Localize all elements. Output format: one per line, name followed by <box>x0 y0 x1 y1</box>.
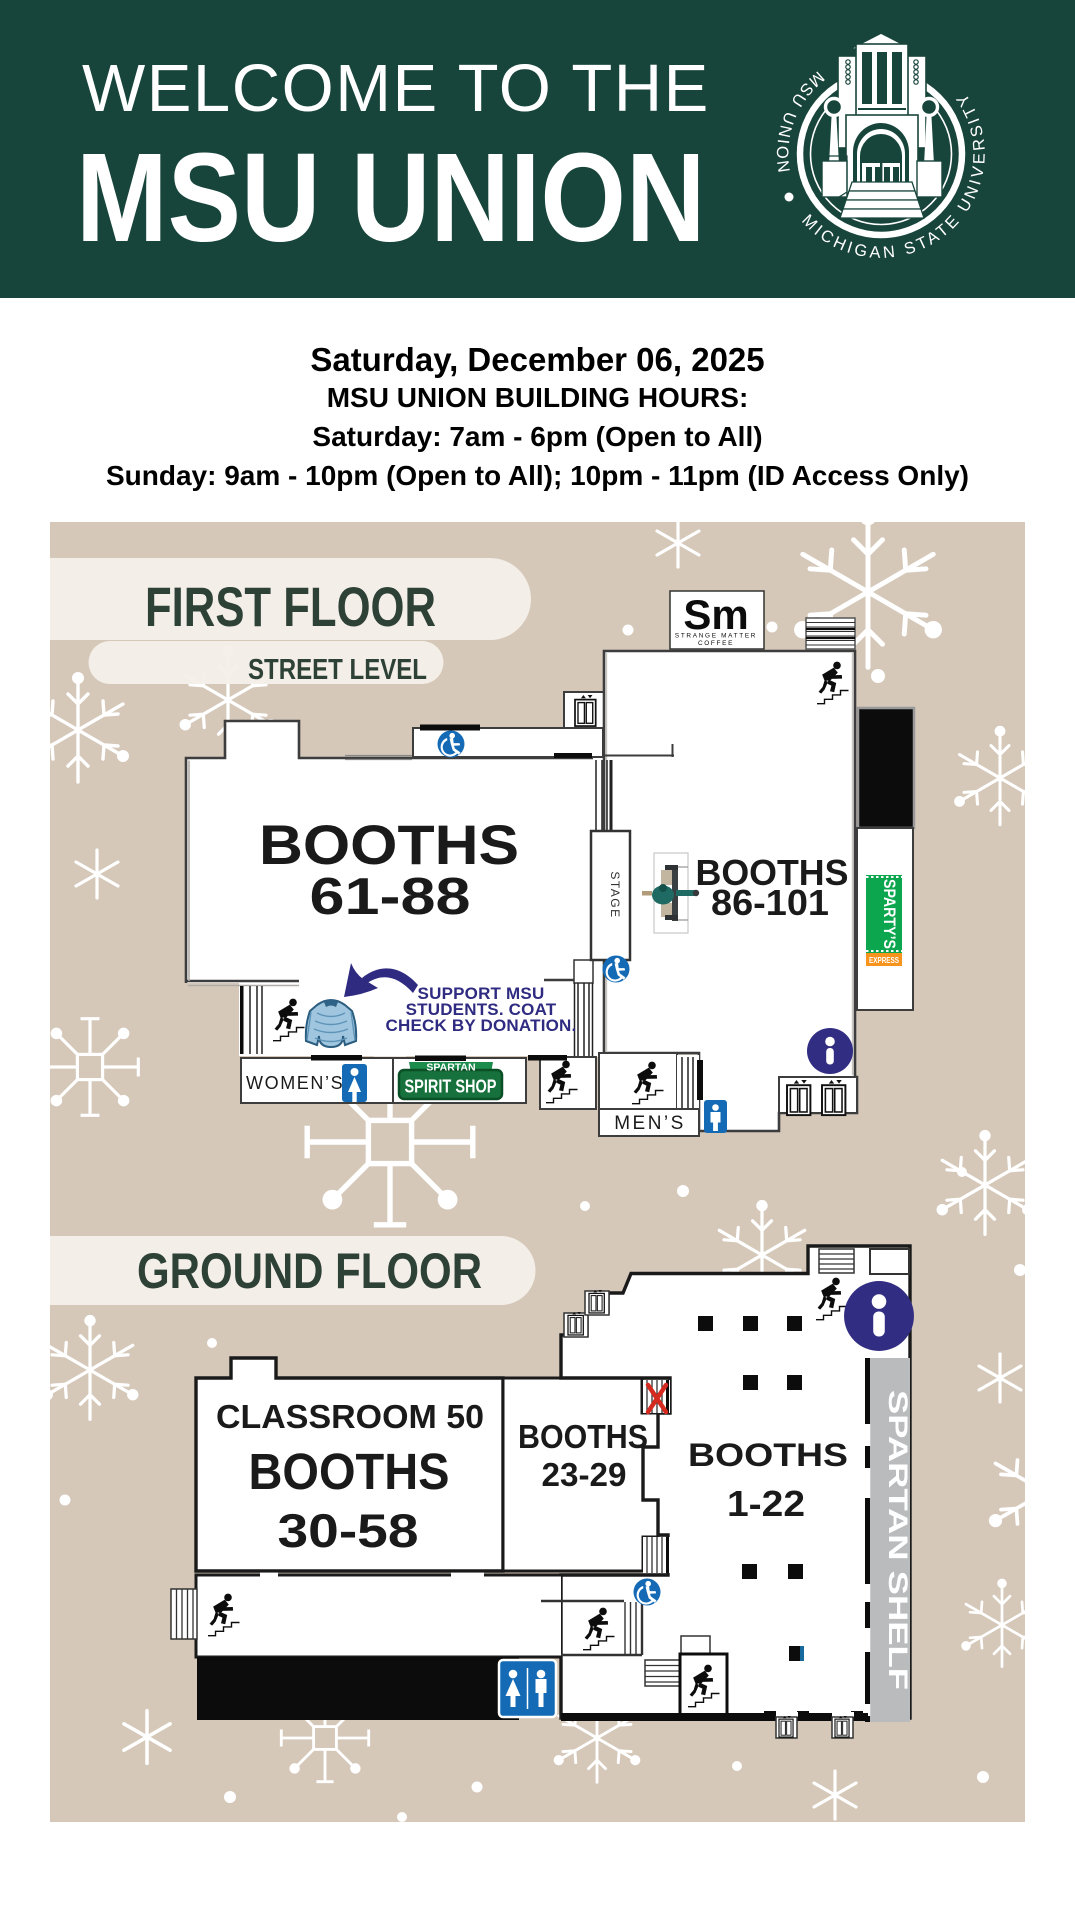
svg-text:BOOTHS: BOOTHS <box>259 813 519 876</box>
svg-text:1-22: 1-22 <box>727 1483 805 1524</box>
svg-text:23-29: 23-29 <box>542 1456 627 1493</box>
svg-text:Sm: Sm <box>683 591 748 638</box>
svg-text:SPARTAN: SPARTAN <box>426 1062 475 1074</box>
svg-text:STRANGE MATTER: STRANGE MATTER <box>675 633 757 640</box>
svg-text:CLASSROOM 50: CLASSROOM 50 <box>216 1398 484 1435</box>
svg-text:SPARTAN SHELF: SPARTAN SHELF <box>883 1390 913 1690</box>
svg-text:86-101: 86-101 <box>711 882 829 923</box>
svg-text:COFFEE: COFFEE <box>698 640 734 647</box>
svg-text:BOOTHS: BOOTHS <box>249 1443 450 1500</box>
svg-text:SPIRIT SHOP: SPIRIT SHOP <box>405 1077 497 1097</box>
svg-text:BOOTHS: BOOTHS <box>688 1437 848 1473</box>
svg-text:EXPRESS: EXPRESS <box>869 956 900 965</box>
svg-text:WOMEN’S: WOMEN’S <box>246 1073 344 1093</box>
svg-text:61-88: 61-88 <box>310 868 471 926</box>
svg-text:30-58: 30-58 <box>278 1504 419 1557</box>
svg-text:BOOTHS: BOOTHS <box>518 1418 648 1455</box>
svg-text:STREET LEVEL: STREET LEVEL <box>248 654 427 686</box>
svg-text:FIRST FLOOR: FIRST FLOOR <box>145 575 436 638</box>
svg-text:MEN’S: MEN’S <box>614 1113 686 1134</box>
svg-text:SPARTY’S: SPARTY’S <box>880 879 899 949</box>
svg-text:GROUND FLOOR: GROUND FLOOR <box>137 1243 482 1299</box>
svg-text:CHECK BY DONATION.: CHECK BY DONATION. <box>386 1016 577 1035</box>
svg-text:STAGE: STAGE <box>608 871 622 918</box>
